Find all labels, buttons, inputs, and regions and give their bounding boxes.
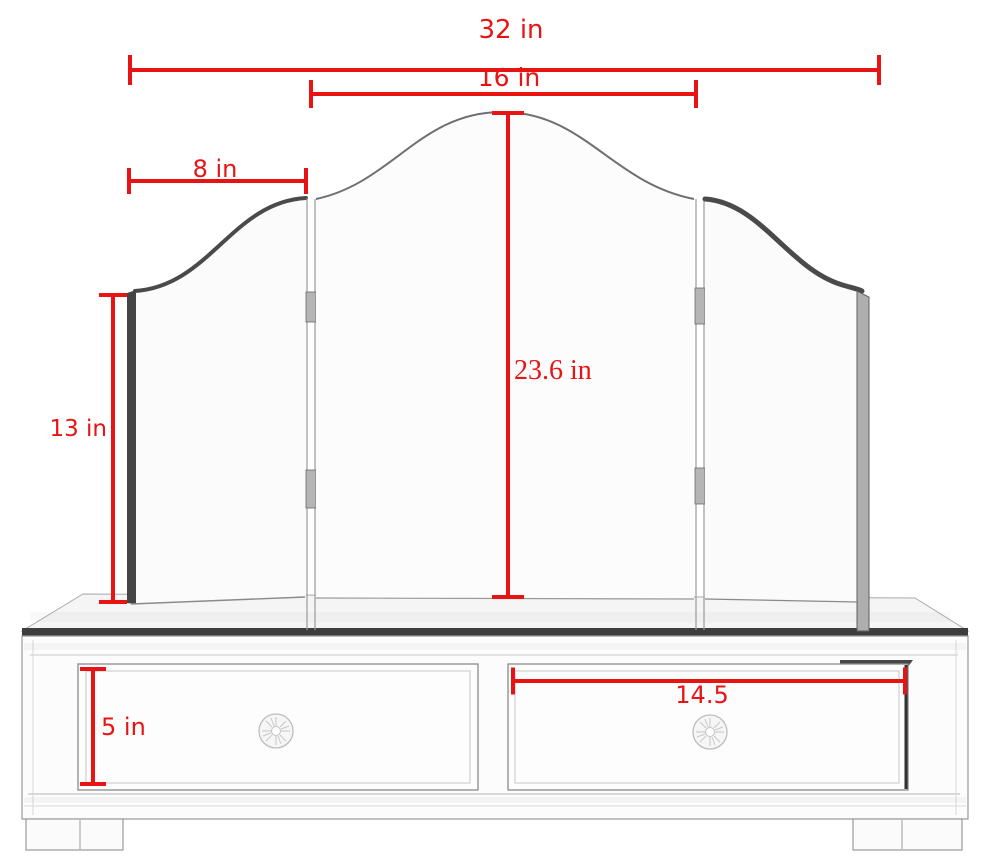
mirror-center-panel: [316, 112, 694, 599]
dim-line-center-panel-width: [309, 92, 698, 96]
left-drawer-knob: [259, 714, 293, 748]
mirror-right-panel: [705, 199, 869, 631]
right-foot: [853, 819, 962, 850]
dim-line-overall-height: [506, 111, 510, 599]
right-panel-edge: [857, 291, 869, 631]
dim-label-drawer-width: 14.5: [652, 683, 752, 708]
left-fold-hinge-top: [306, 292, 316, 322]
right-fold-hinge-top: [695, 288, 705, 324]
furniture-drawing: [0, 0, 990, 868]
dimension-diagram: 32 in 16 in 8 in 13 in 23.6 in 5 in 14.5: [0, 0, 990, 868]
dim-label-drawer-height: 5 in: [101, 715, 146, 740]
left-panel-edge: [127, 290, 136, 604]
dim-line-drawer-height: [91, 667, 95, 786]
tabletop-front-edge: [22, 628, 968, 636]
dim-label-overall-height: 23.6 in: [514, 356, 592, 385]
left-fold: [306, 198, 316, 630]
right-fold-hinge-bottom: [695, 468, 705, 504]
right-fold: [695, 199, 705, 630]
dim-label-overall-width: 32 in: [451, 17, 571, 44]
dim-label-side-panel-width: 8 in: [165, 157, 265, 182]
dim-label-side-panel-height: 13 in: [27, 417, 107, 441]
left-fold-hinge-bottom: [306, 470, 316, 508]
right-drawer-knob: [693, 715, 727, 749]
mirror-left-panel: [127, 198, 306, 604]
dim-line-side-panel-height: [111, 293, 115, 604]
left-foot: [26, 819, 123, 850]
trifold-mirror: [127, 112, 869, 631]
dim-label-center-panel-width: 16 in: [449, 65, 569, 91]
base-feet: [26, 819, 962, 850]
